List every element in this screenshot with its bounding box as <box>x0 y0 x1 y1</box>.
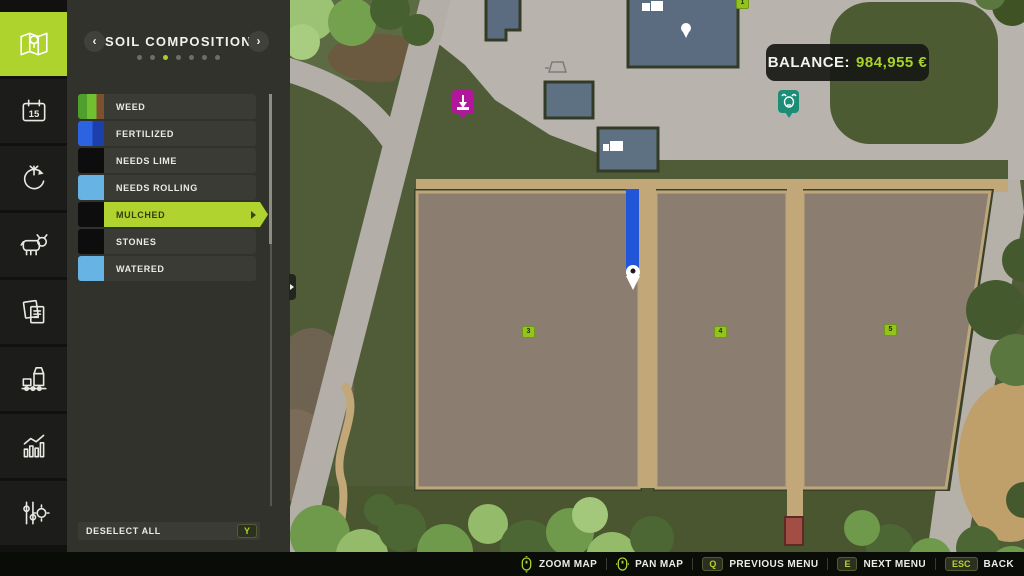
building-main-barn <box>628 0 738 67</box>
page-dots <box>67 55 290 60</box>
hint-zoom-map: ZOOM MAP <box>520 556 597 573</box>
hint-previous-menu: Q PREVIOUS MENU <box>702 557 818 571</box>
mouse-wheel-icon <box>520 556 533 573</box>
hint-next-menu: E NEXT MENU <box>837 557 926 571</box>
field-number-3[interactable]: 3 <box>522 326 535 338</box>
hud-divider <box>935 558 936 570</box>
key-badge-q: Q <box>702 557 723 571</box>
legend-item-watered[interactable]: WATERED <box>78 256 256 281</box>
soil-legend-list: WEED FERTILIZED NEEDS LIME NEEDS ROLLING… <box>78 94 256 281</box>
field-4[interactable] <box>653 189 790 491</box>
statistics-icon <box>18 430 50 462</box>
menu-sidebar: 15 <box>0 0 67 553</box>
fertilized-strip <box>626 189 639 273</box>
svg-text:15: 15 <box>28 109 39 120</box>
sidebar-tab-map[interactable] <box>0 12 67 76</box>
panel-header: ‹ SOIL COMPOSITION › <box>67 0 290 70</box>
sidebar-tab-settings[interactable] <box>0 481 67 545</box>
cow-icon <box>18 229 50 261</box>
field-number-5[interactable]: 5 <box>884 324 897 336</box>
field-number-1[interactable]: 1 <box>736 0 749 9</box>
legend-item-needs-rolling[interactable]: NEEDS ROLLING <box>78 175 256 200</box>
hint-back: ESC BACK <box>945 557 1014 571</box>
game-screen: 1 3 4 5 BALANCE: 984,955 € 15 <box>0 0 1024 576</box>
legend-swatch <box>78 121 104 146</box>
field-number-4[interactable]: 4 <box>714 326 727 338</box>
contracts-icon <box>18 296 50 328</box>
building-red-shed <box>785 517 803 545</box>
legend-item-mulched[interactable]: MULCHED <box>78 202 256 227</box>
map-icon <box>18 28 50 60</box>
legend-swatch <box>78 202 104 227</box>
hud-divider <box>692 558 693 570</box>
field-3[interactable] <box>414 189 642 491</box>
crop-rotation-icon <box>18 162 50 194</box>
key-badge-e: E <box>837 557 857 571</box>
key-badge-esc: ESC <box>945 557 978 571</box>
sidebar-tab-crop-rotation[interactable] <box>0 146 67 210</box>
building-shed-b <box>598 128 658 171</box>
legend-item-weed[interactable]: WEED <box>78 94 256 119</box>
selected-arrow-icon <box>251 211 256 219</box>
sidebar-tab-animals[interactable] <box>0 213 67 277</box>
next-page-button[interactable]: › <box>248 31 269 52</box>
balance-display: BALANCE: 984,955 € <box>766 44 929 81</box>
hint-pan-map: PAN MAP <box>616 556 683 573</box>
sidebar-tab-contracts[interactable] <box>0 280 67 344</box>
key-badge-y: Y <box>237 524 257 538</box>
hud-divider <box>827 558 828 570</box>
calendar-icon: 15 <box>18 95 50 127</box>
legend-swatch <box>78 256 104 281</box>
legend-item-needs-lime[interactable]: NEEDS LIME <box>78 148 256 173</box>
balance-value: 984,955 € <box>856 54 927 71</box>
hotkey-bar: ZOOM MAP PAN MAP Q PREVIOUS MENU E NEXT … <box>0 552 1024 576</box>
legend-item-fertilized[interactable]: FERTILIZED <box>78 121 256 146</box>
sidebar-tab-calendar[interactable]: 15 <box>0 79 67 143</box>
soil-composition-panel: ‹ SOIL COMPOSITION › WEED FERTILIZED NEE… <box>67 0 290 553</box>
legend-swatch <box>78 148 104 173</box>
panel-collapse-handle[interactable] <box>289 274 296 300</box>
production-icon <box>18 363 50 395</box>
balance-label: BALANCE: <box>768 54 850 71</box>
hud-divider <box>606 558 607 570</box>
panel-scrollbar-thumb[interactable] <box>269 94 272 244</box>
building-shed-a <box>545 82 593 118</box>
map-view[interactable]: 1 3 4 5 BALANCE: 984,955 € <box>290 0 1024 576</box>
deselect-all-button[interactable]: DESELECT ALL Y <box>78 522 260 540</box>
map-terrain <box>290 0 1024 576</box>
legend-swatch <box>78 175 104 200</box>
sidebar-tab-statistics[interactable] <box>0 414 67 478</box>
legend-swatch <box>78 94 104 119</box>
sidebar-tab-production[interactable] <box>0 347 67 411</box>
settings-icon <box>18 497 50 529</box>
legend-swatch <box>78 229 104 254</box>
mouse-icon <box>616 556 629 573</box>
legend-item-stones[interactable]: STONES <box>78 229 256 254</box>
